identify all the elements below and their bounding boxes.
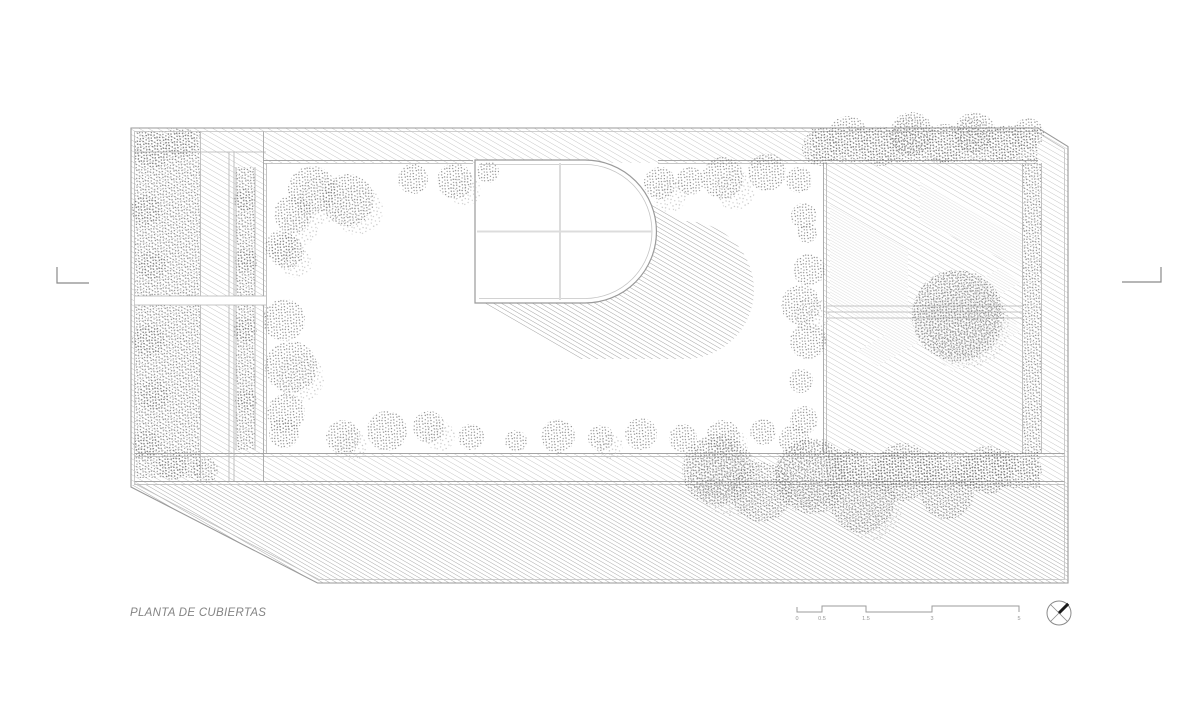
scale-label-1-5: 1.5 [862, 616, 870, 622]
roof-plan-drawing: 0 0.5 1.5 3 5 [0, 0, 1200, 711]
scale-label-0: 0 [795, 616, 798, 622]
page-title: PLANTA DE CUBIERTAS [130, 607, 266, 619]
skylight-pavilion [475, 160, 656, 303]
scale-label-0-5: 0.5 [818, 616, 826, 622]
scale-bar: 0 0.5 1.5 3 5 [795, 606, 1020, 622]
hedge-top-right [802, 112, 1044, 166]
north-arrow-icon [1047, 601, 1071, 625]
registration-mark-left [57, 267, 89, 283]
roof-plan-sheet: 0 0.5 1.5 3 5 PLANTA DE CUBIERTAS [0, 0, 1200, 711]
left-walkway [134, 296, 266, 305]
scale-label-5: 5 [1017, 616, 1020, 622]
registration-mark-right [1122, 267, 1161, 282]
site-area [131, 126, 1068, 583]
scale-label-3: 3 [930, 616, 933, 622]
